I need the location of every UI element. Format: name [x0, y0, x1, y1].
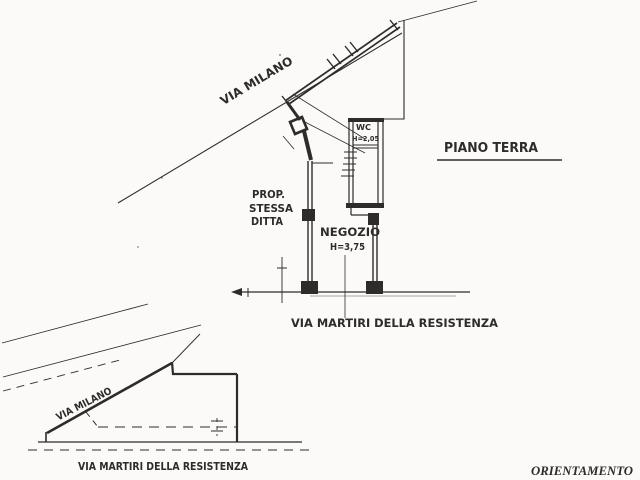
- plan-drawing: WC H=2,05: [0, 0, 640, 480]
- property-note: PROP. STESSA DITTA: [249, 189, 294, 228]
- site-lot-outline: [46, 334, 237, 442]
- floor-title: PIANO TERRA: [437, 141, 562, 160]
- lot-edge-thin-extension: [172, 334, 200, 363]
- facade-wall-inner-line: [289, 27, 400, 104]
- shop-label-group: NEGOZIO H=3,75: [320, 225, 380, 253]
- lot-interior-dashed-diagonal: [86, 412, 98, 427]
- shop-label: NEGOZIO: [320, 225, 380, 239]
- site-street-lower-line: [3, 325, 201, 377]
- property-note-line3: DITTA: [251, 216, 284, 228]
- property-note-line2: STESSA: [249, 203, 294, 215]
- street-label-via-martiri: VIA MARTIRI DELLA RESISTENZA: [291, 316, 498, 330]
- site-street-upper-line: [2, 304, 148, 343]
- site-lot-interior: [86, 412, 236, 436]
- property-note-line1: PROP.: [252, 189, 285, 201]
- facade-opening-ticks: [282, 20, 398, 106]
- bottom-street-lines: [231, 255, 470, 318]
- wc-top-wall: [348, 118, 384, 122]
- shop-left-wall-pilaster: [302, 209, 315, 221]
- scanned-floor-plan-sheet: WC H=2,05: [0, 0, 640, 480]
- speck: [279, 54, 281, 56]
- shop-height-label: H=3,75: [330, 242, 365, 253]
- facade-wall: [282, 1, 477, 106]
- entrance-angled-wall: [304, 131, 311, 160]
- boundary-reference-line: [277, 257, 287, 303]
- site-street-via-martiri: [28, 442, 310, 450]
- orientation-title: ORIENTAMENTO: [531, 464, 633, 478]
- facade-line-extension: [398, 1, 477, 22]
- site-street-dashed-line: [3, 360, 120, 391]
- wc-divider-wall: [353, 145, 378, 148]
- site-street-via-milano: [2, 304, 201, 391]
- site-plan: VIA MILANO VIA MARTIRI DELLA RESISTENZA: [2, 304, 310, 473]
- floor-title-label: PIANO TERRA: [444, 141, 538, 156]
- speck: [137, 246, 139, 248]
- site-street-label-via-martiri: VIA MARTIRI DELLA RESISTENZA: [78, 461, 249, 473]
- shop-left-wall: [308, 161, 312, 284]
- speck: [161, 177, 163, 179]
- wc-bottom-wall: [346, 203, 384, 208]
- wc-height-label: H=2,05: [352, 135, 379, 143]
- site-street-label-via-milano: VIA MILANO: [55, 386, 114, 423]
- lot-hypotenuse-wall: [47, 363, 172, 433]
- street-label-via-milano: VIA MILANO: [218, 54, 295, 108]
- facade-wall-outer-line: [285, 23, 397, 101]
- wc-room: WC H=2,05: [341, 118, 384, 208]
- shop-right-wall-pilaster: [368, 213, 379, 225]
- sidewalk-arrowhead: [231, 288, 242, 296]
- main-floor-plan: WC H=2,05: [118, 1, 562, 330]
- lot-top-step-wall: [172, 362, 237, 374]
- wc-label: WC: [356, 123, 371, 132]
- right-boundary-line: [384, 20, 404, 119]
